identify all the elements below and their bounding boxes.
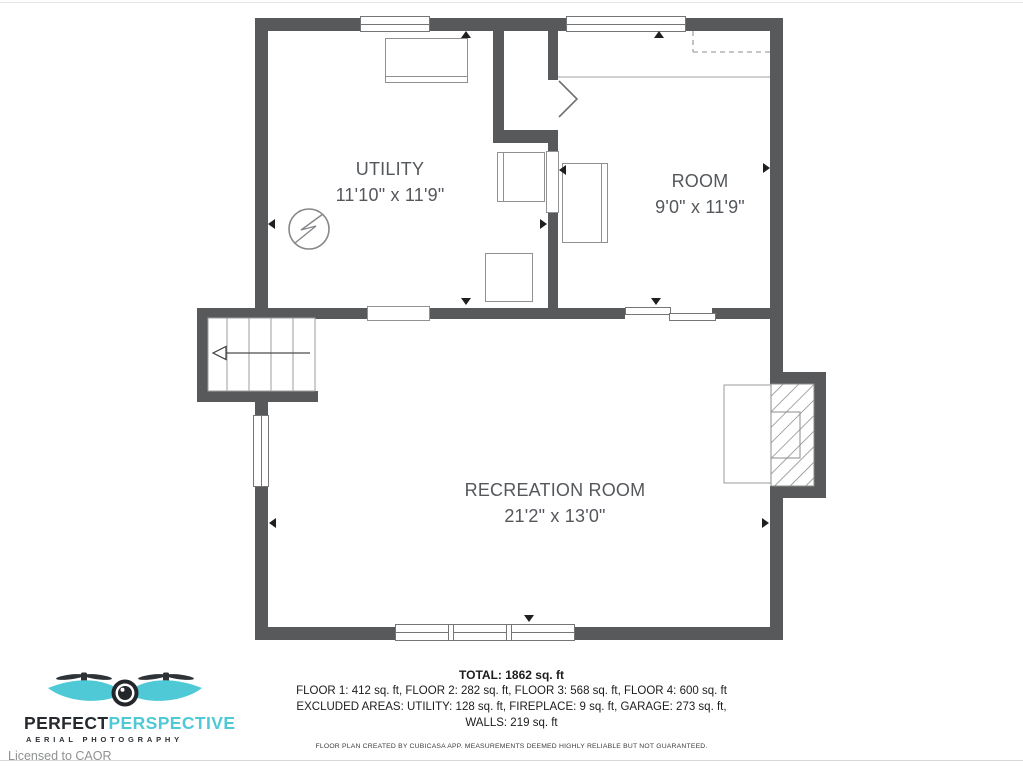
room-name: UTILITY bbox=[280, 156, 500, 182]
window-mullion bbox=[506, 625, 512, 640]
furniture-box-utility bbox=[485, 253, 533, 302]
direction-marker-icon bbox=[762, 518, 769, 528]
wall-closet-vertical bbox=[493, 31, 504, 130]
window-utility-top bbox=[360, 16, 430, 32]
wall-divider-upper bbox=[548, 31, 558, 80]
direction-marker-icon bbox=[269, 518, 276, 528]
room-dashed-area bbox=[693, 31, 770, 52]
wall-divider-lower bbox=[548, 213, 558, 308]
wall-left-upper bbox=[255, 18, 268, 318]
direction-marker-icon bbox=[524, 615, 534, 622]
wall-mid-segment-1 bbox=[197, 308, 367, 319]
furniture-appliance-utility bbox=[497, 152, 545, 202]
closet-door-icon bbox=[559, 81, 577, 117]
wall-closet-horizontal bbox=[493, 130, 558, 143]
direction-marker-icon bbox=[651, 298, 661, 305]
drone-icon bbox=[40, 668, 210, 714]
window-glass-line bbox=[396, 632, 574, 633]
logo-wordmark: PERFECTPERSPECTIVE bbox=[24, 713, 235, 734]
wall-top bbox=[255, 18, 783, 31]
direction-marker-icon bbox=[654, 31, 664, 38]
room-dimensions: 9'0" x 11'9" bbox=[590, 194, 810, 220]
water-heater-icon bbox=[289, 209, 329, 249]
sliding-door-panel-1 bbox=[625, 307, 671, 315]
window-glass-line bbox=[361, 24, 429, 25]
room-name: RECREATION ROOM bbox=[445, 477, 665, 503]
page-bottom-edge bbox=[0, 760, 1023, 761]
furniture-edge-line bbox=[503, 153, 504, 201]
door-opening-utility bbox=[367, 306, 430, 321]
page-top-edge bbox=[0, 2, 1023, 3]
direction-marker-icon bbox=[461, 31, 471, 38]
wall-mid-segment-3 bbox=[712, 308, 770, 319]
staircase-icon bbox=[208, 318, 315, 391]
window-glass-line bbox=[261, 416, 262, 486]
room-name: ROOM bbox=[590, 168, 810, 194]
room-label-recreation: RECREATION ROOM 21'2" x 13'0" bbox=[445, 477, 665, 529]
pass-through-divider bbox=[546, 151, 559, 213]
window-recreation-bottom bbox=[395, 624, 575, 641]
furniture-counter-utility bbox=[385, 38, 468, 83]
wall-fireplace-bottom bbox=[770, 486, 826, 498]
wall-stair-left bbox=[197, 308, 208, 402]
window-glass-line bbox=[567, 24, 685, 25]
room-dimensions: 11'10" x 11'9" bbox=[280, 182, 500, 208]
window-room-top bbox=[566, 16, 686, 32]
wall-right-lower bbox=[770, 498, 783, 640]
wall-stair-bottom bbox=[197, 391, 318, 402]
sliding-door-panel-2 bbox=[669, 313, 716, 321]
logo-tagline: AERIAL PHOTOGRAPHY bbox=[26, 735, 183, 744]
fireplace-icon bbox=[724, 384, 814, 486]
direction-marker-icon bbox=[540, 219, 547, 229]
window-recreation-left bbox=[253, 415, 269, 487]
direction-marker-icon bbox=[559, 165, 566, 175]
logo-text-secondary: PERSPECTIVE bbox=[108, 713, 235, 733]
direction-marker-icon bbox=[268, 219, 275, 229]
wall-mid-segment-2 bbox=[430, 308, 625, 319]
room-label-utility: UTILITY 11'10" x 11'9" bbox=[280, 156, 500, 208]
plan-symbols-layer bbox=[0, 0, 1023, 767]
window-mullion bbox=[448, 625, 454, 640]
floor-plan-page: UTILITY 11'10" x 11'9" ROOM 9'0" x 11'9"… bbox=[0, 0, 1023, 767]
direction-marker-icon bbox=[461, 298, 471, 305]
wall-fireplace-right bbox=[814, 372, 826, 498]
room-label-room: ROOM 9'0" x 11'9" bbox=[590, 168, 810, 220]
logo-text-primary: PERFECT bbox=[24, 713, 108, 733]
room-dimensions: 21'2" x 13'0" bbox=[445, 503, 665, 529]
furniture-edge-line bbox=[386, 76, 467, 77]
